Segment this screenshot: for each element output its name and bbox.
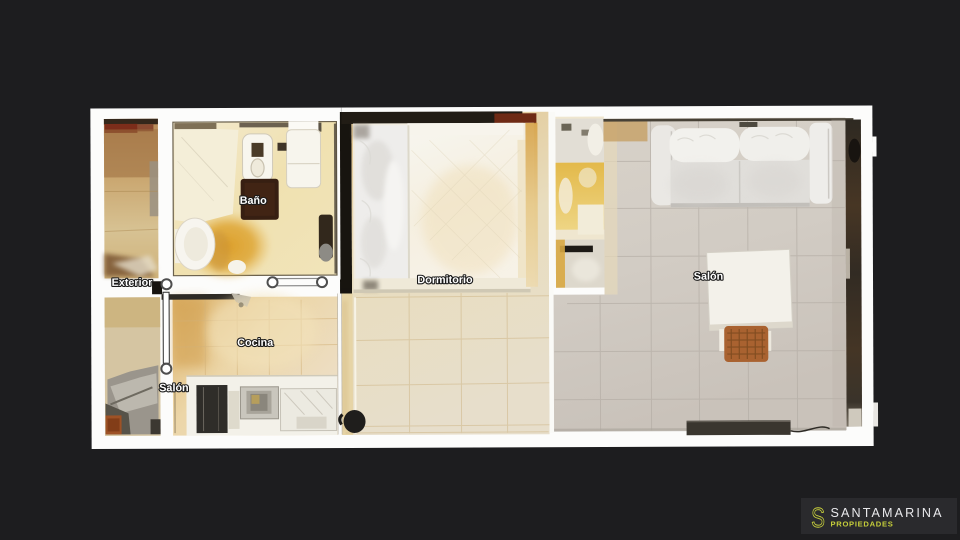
svg-text:SANTAMARINA: SANTAMARINA (831, 506, 944, 520)
svg-text:PROPIEDADES: PROPIEDADES (831, 520, 894, 529)
svg-text:Salón: Salón (694, 271, 723, 283)
svg-text:Exterior: Exterior (112, 277, 154, 289)
svg-text:Dormitorio: Dormitorio (417, 274, 473, 286)
svg-text:Salón: Salón (159, 382, 188, 394)
svg-text:Baño: Baño (240, 195, 267, 207)
svg-text:S: S (811, 503, 825, 534)
svg-text:Cocina: Cocina (237, 337, 274, 349)
